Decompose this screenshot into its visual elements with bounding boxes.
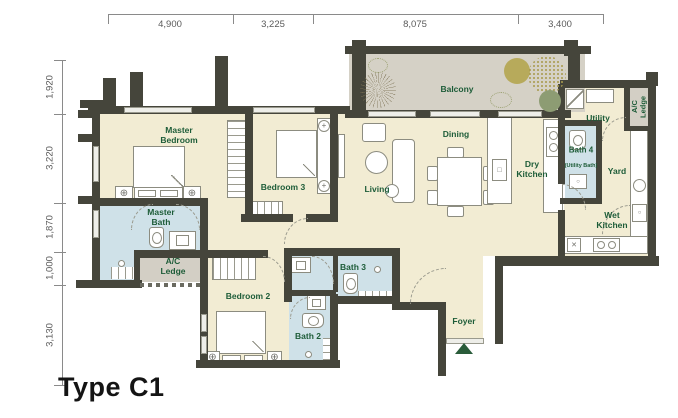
- dimension-label: 3,130: [45, 323, 56, 347]
- sliding-door: [368, 111, 416, 117]
- wall: [624, 126, 656, 131]
- wall: [196, 360, 340, 368]
- floor-plan-canvas: 4,900 3,225 8,075 3,400 1,920 3,220 1,87…: [0, 0, 678, 418]
- dimension-label: 1,920: [45, 75, 56, 99]
- wall: [241, 214, 293, 222]
- toilet: [343, 273, 358, 294]
- room-label-dry-kitchen: Dry Kitchen: [512, 160, 552, 180]
- desk: [212, 257, 256, 280]
- wall: [497, 256, 659, 266]
- dimension-label: 3,400: [548, 19, 572, 30]
- dining-chair: [447, 206, 464, 217]
- wall-column: [215, 56, 228, 108]
- wall: [330, 108, 338, 222]
- burner: [549, 143, 558, 152]
- window: [253, 107, 315, 113]
- ruler-tick: [518, 14, 519, 24]
- plan-title: Type C1: [58, 372, 165, 403]
- armchair: [362, 123, 386, 142]
- plant-canopy: [539, 90, 561, 112]
- window: [93, 210, 99, 238]
- ruler-tick: [603, 14, 604, 24]
- room-label-bath-3: Bath 3: [333, 263, 373, 273]
- shower-head: [374, 266, 381, 273]
- ruler-tick: [313, 14, 314, 24]
- ledge-grille: [140, 283, 204, 287]
- ruler-line: [108, 14, 603, 15]
- plant-starburst: [360, 72, 396, 108]
- bed-sheet-fold: [252, 341, 264, 352]
- sink: ✕: [567, 238, 581, 252]
- dimension-label: 1,870: [45, 215, 56, 239]
- wall: [330, 294, 338, 366]
- wall: [648, 80, 656, 264]
- window: [201, 336, 207, 354]
- nightstand: +: [318, 120, 330, 132]
- dimension-label: 8,075: [403, 19, 427, 30]
- ruler-tick: [54, 285, 66, 286]
- round-sink: [633, 179, 646, 192]
- wall: [245, 112, 253, 222]
- dimension-label: 4,900: [158, 19, 182, 30]
- sliding-door: [498, 111, 542, 117]
- plant-canopy: [504, 58, 530, 84]
- wall: [76, 280, 142, 288]
- dimension-label: 1,000: [45, 256, 56, 280]
- toilet: [149, 227, 164, 248]
- burner: [597, 241, 605, 249]
- utility-counter: [586, 89, 614, 103]
- nightstand: +: [318, 180, 330, 192]
- room-label-master-bath: Master Bath: [141, 208, 181, 228]
- wall: [284, 290, 336, 296]
- entry-arrow: [455, 343, 473, 354]
- window: [124, 107, 192, 113]
- wall-fin: [78, 110, 94, 118]
- wall: [134, 256, 140, 282]
- room-label-bedroom-2: Bedroom 2: [213, 292, 283, 302]
- vanity-sink: [169, 231, 196, 250]
- wardrobe: [227, 120, 246, 198]
- dining-chair: [447, 147, 464, 158]
- dimension-label: 3,225: [261, 19, 285, 30]
- wall-fin: [78, 134, 94, 142]
- ruler-tick: [54, 203, 66, 204]
- room-label-foyer: Foyer: [444, 317, 484, 327]
- dining-chair: [427, 166, 438, 181]
- wall-fin: [78, 196, 94, 204]
- ruler-tick: [54, 252, 66, 253]
- room-label-bath-2: Bath 2: [288, 332, 328, 342]
- window: [201, 314, 207, 332]
- room-sublabel-bath-4: (Utility Bath): [564, 163, 598, 169]
- room-label-balcony: Balcony: [427, 85, 487, 95]
- ruler-tick: [54, 114, 66, 115]
- sliding-door: [430, 111, 480, 117]
- bed-sheet-fold: [303, 164, 315, 176]
- wall: [284, 248, 400, 256]
- plant-speckled: [528, 56, 566, 94]
- wall: [200, 198, 208, 256]
- wall: [204, 250, 268, 258]
- console-drawer: [160, 190, 178, 197]
- room-label-wet-kitchen: Wet Kitchen: [589, 211, 635, 231]
- wall: [345, 46, 591, 54]
- room-label-ac-ledge-left: A/C Ledge: [154, 257, 192, 277]
- plant-shrub: [490, 92, 512, 108]
- tv-console: [338, 134, 345, 178]
- wall: [558, 210, 565, 256]
- console-drawer: [138, 190, 156, 197]
- ruler-line: [62, 60, 63, 385]
- room-label-yard: Yard: [597, 167, 637, 177]
- washing-machine: [566, 89, 584, 109]
- burner: [608, 241, 616, 249]
- dining-table: [437, 157, 482, 206]
- dining-chair: [427, 190, 438, 205]
- dimension-label: 3,220: [45, 146, 56, 170]
- wall-column: [130, 72, 143, 108]
- island-sink: □: [492, 159, 507, 181]
- wall: [495, 256, 503, 344]
- shower-head: [305, 351, 312, 358]
- room-label-bedroom-3: Bedroom 3: [248, 183, 318, 193]
- wall: [560, 80, 656, 88]
- room-label-ac-ledge-right: A/C Ledge: [631, 89, 647, 125]
- shower-head: [118, 260, 125, 267]
- room-label-living: Living: [352, 185, 402, 195]
- vanity-sink: [290, 257, 311, 273]
- room-label-master-bedroom: Master Bedroom: [147, 126, 211, 146]
- room-label-utility: Utility: [573, 114, 623, 124]
- ruler-tick: [233, 14, 234, 24]
- closet: [249, 201, 283, 215]
- room-label-dining: Dining: [431, 130, 481, 140]
- coffee-table: [365, 151, 388, 174]
- burner: [549, 131, 558, 140]
- window: [93, 146, 99, 182]
- wall: [333, 296, 400, 304]
- room-label-bath-4: Bath 4: [567, 145, 595, 154]
- plant-shrub: [368, 58, 388, 73]
- ruler-tick: [108, 14, 109, 24]
- wall-column: [103, 78, 116, 108]
- ruler-tick: [54, 60, 66, 61]
